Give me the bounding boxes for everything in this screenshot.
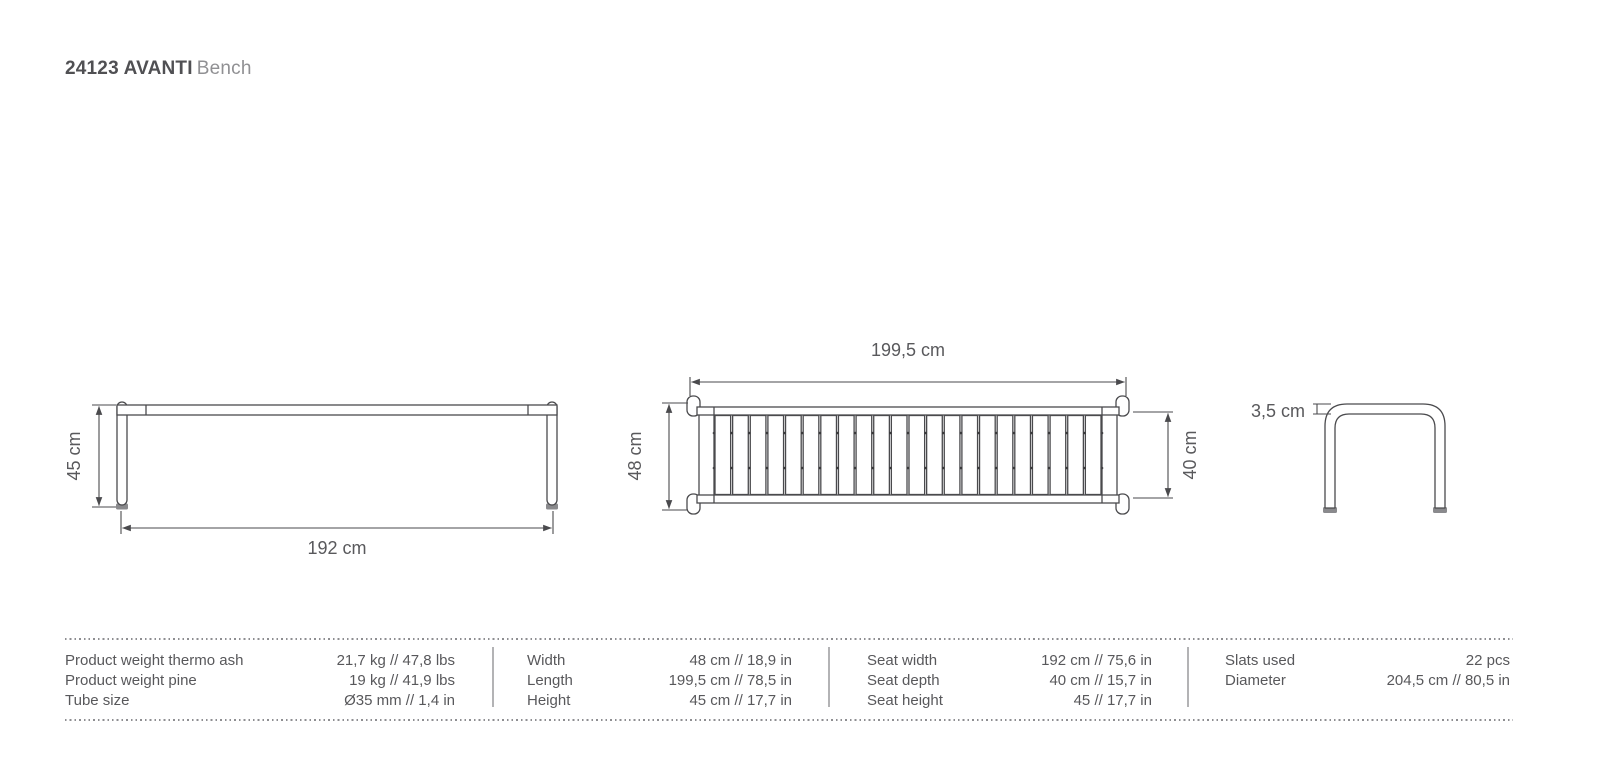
front-left-leg bbox=[117, 402, 127, 505]
seat-slat bbox=[733, 416, 749, 495]
spec-label: Product weight thermo ash bbox=[65, 652, 243, 669]
top-view-front-rail bbox=[697, 407, 1119, 415]
top-length-label: 199,5 cm bbox=[871, 340, 945, 360]
slat-screw-dot bbox=[748, 467, 751, 470]
seat-slat bbox=[750, 416, 766, 495]
slat-screw-dot bbox=[924, 432, 927, 435]
slat-screw-dot bbox=[1030, 432, 1033, 435]
slat-screw-dot bbox=[871, 432, 874, 435]
front-width-label: 192 cm bbox=[307, 538, 366, 558]
slat-screw-dot bbox=[942, 432, 945, 435]
top-view: 199,5 cm 48 cm 40 cm bbox=[625, 340, 1200, 514]
spec-label: Slats used bbox=[1225, 652, 1295, 669]
column-separator bbox=[828, 647, 830, 707]
spec-value: 22 pcs bbox=[1466, 652, 1510, 669]
slat-screw-dot bbox=[783, 432, 786, 435]
spec-column-materials: Slats used22 pcsDiameter204,5 cm // 80,5… bbox=[1225, 650, 1510, 690]
spec-row: Width48 cm // 18,9 in bbox=[527, 650, 792, 670]
spec-row: Seat width192 cm // 75,6 in bbox=[867, 650, 1152, 670]
dotted-rule-top bbox=[65, 638, 1513, 640]
spec-value: 204,5 cm // 80,5 in bbox=[1387, 672, 1510, 689]
spec-label: Width bbox=[527, 652, 565, 669]
slat-screw-dot bbox=[1065, 432, 1068, 435]
column-separator bbox=[492, 647, 494, 707]
front-view: 45 cm 192 cm bbox=[64, 402, 558, 558]
spec-value: 45 cm // 17,7 in bbox=[689, 692, 792, 709]
slat-screw-dot bbox=[1013, 467, 1016, 470]
slat-screw-dot bbox=[819, 432, 822, 435]
seat-slat bbox=[944, 416, 960, 495]
slat-screw-dot bbox=[801, 467, 804, 470]
spec-label: Height bbox=[527, 692, 570, 709]
spec-label: Seat depth bbox=[867, 672, 940, 689]
slat-screw-dot bbox=[889, 467, 892, 470]
top-seat-depth-dimension bbox=[1133, 412, 1173, 498]
slat-screw-dot bbox=[783, 467, 786, 470]
front-seat-bar bbox=[117, 405, 557, 415]
slat-screw-dot bbox=[801, 432, 804, 435]
front-height-label: 45 cm bbox=[64, 431, 84, 480]
slat-screw-dot bbox=[854, 467, 857, 470]
side-view: 3,5 cm bbox=[1251, 401, 1447, 513]
spec-label: Tube size bbox=[65, 692, 129, 709]
seat-slat bbox=[768, 416, 784, 495]
top-depth-label: 48 cm bbox=[625, 431, 645, 480]
seat-slat bbox=[803, 416, 819, 495]
slat-screw-dot bbox=[730, 432, 733, 435]
slat-screw-dot bbox=[907, 467, 910, 470]
spec-value: 199,5 cm // 78,5 in bbox=[669, 672, 792, 689]
seat-slat bbox=[838, 416, 854, 495]
spec-value: 48 cm // 18,9 in bbox=[689, 652, 792, 669]
slat-screw-dot bbox=[836, 432, 839, 435]
seat-slat bbox=[980, 416, 996, 495]
slat-screw-dot bbox=[1083, 467, 1086, 470]
spec-value: 192 cm // 75,6 in bbox=[1041, 652, 1152, 669]
spec-row: Seat depth40 cm // 15,7 in bbox=[867, 670, 1152, 690]
spec-value: Ø35 mm // 1,4 in bbox=[344, 692, 455, 709]
front-height-dimension bbox=[92, 405, 116, 507]
slat-screw-dot bbox=[889, 432, 892, 435]
slat-screw-dot bbox=[766, 467, 769, 470]
top-depth-dimension bbox=[662, 403, 688, 510]
seat-slat bbox=[1050, 416, 1066, 495]
spec-value: 21,7 kg // 47,8 lbs bbox=[337, 652, 455, 669]
side-tube-label: 3,5 cm bbox=[1251, 401, 1305, 421]
spec-label: Length bbox=[527, 672, 573, 689]
front-width-dimension bbox=[121, 511, 553, 534]
spec-row: Product weight pine19 kg // 41,9 lbs bbox=[65, 670, 455, 690]
slat-screw-dot bbox=[766, 432, 769, 435]
spec-row: Product weight thermo ash21,7 kg // 47,8… bbox=[65, 650, 455, 670]
slat-screw-dot bbox=[1013, 432, 1016, 435]
top-view-back-rail bbox=[697, 495, 1119, 503]
technical-drawing: 45 cm 192 cm bbox=[0, 0, 1600, 620]
product-spec-sheet: 24123 AVANTIBench 45 cm bbox=[0, 0, 1600, 783]
seat-slat bbox=[962, 416, 978, 495]
spec-column-weights: Product weight thermo ash21,7 kg // 47,8… bbox=[65, 650, 455, 710]
spec-column-overall-dimensions: Width48 cm // 18,9 inLength199,5 cm // 7… bbox=[527, 650, 792, 710]
spec-row: Slats used22 pcs bbox=[1225, 650, 1510, 670]
spec-value: 40 cm // 15,7 in bbox=[1049, 672, 1152, 689]
slat-screw-dot bbox=[1048, 432, 1051, 435]
slat-screw-dot bbox=[854, 432, 857, 435]
slat-screw-dot bbox=[1083, 432, 1086, 435]
seat-slat bbox=[874, 416, 890, 495]
slat-screw-dot bbox=[748, 432, 751, 435]
slat-screw-dot bbox=[995, 432, 998, 435]
spec-row: Diameter204,5 cm // 80,5 in bbox=[1225, 670, 1510, 690]
seat-slat bbox=[1068, 416, 1084, 495]
top-length-dimension bbox=[690, 377, 1126, 396]
slat-screw-dot bbox=[977, 467, 980, 470]
spec-value: 45 // 17,7 in bbox=[1074, 692, 1152, 709]
spec-row: Height45 cm // 17,7 in bbox=[527, 690, 792, 710]
slat-screw-dot bbox=[1048, 467, 1051, 470]
spec-column-seat-dimensions: Seat width192 cm // 75,6 inSeat depth40 … bbox=[867, 650, 1152, 710]
spec-label: Diameter bbox=[1225, 672, 1286, 689]
slat-screw-dot bbox=[995, 467, 998, 470]
seat-slat bbox=[786, 416, 802, 495]
side-tube-frame bbox=[1325, 404, 1445, 508]
front-right-leg bbox=[547, 402, 557, 505]
slat-screw-dot bbox=[907, 432, 910, 435]
slat-screw-dot bbox=[1030, 467, 1033, 470]
spec-row: Tube sizeØ35 mm // 1,4 in bbox=[65, 690, 455, 710]
slat-field bbox=[713, 416, 1104, 495]
seat-slat bbox=[1015, 416, 1031, 495]
seat-slat bbox=[997, 416, 1013, 495]
slat-screw-dot bbox=[730, 467, 733, 470]
slat-screw-dot bbox=[960, 467, 963, 470]
seat-slat bbox=[1032, 416, 1048, 495]
slat-screw-dot bbox=[960, 432, 963, 435]
seat-slat bbox=[927, 416, 943, 495]
spec-row: Length199,5 cm // 78,5 in bbox=[527, 670, 792, 690]
seat-slat bbox=[891, 416, 907, 495]
slat-screw-dot bbox=[1065, 467, 1068, 470]
spec-row: Seat height45 // 17,7 in bbox=[867, 690, 1152, 710]
slat-screw-dot bbox=[836, 467, 839, 470]
seat-slat bbox=[856, 416, 872, 495]
column-separator bbox=[1187, 647, 1189, 707]
slat-screw-dot bbox=[924, 467, 927, 470]
slat-screw-dot bbox=[819, 467, 822, 470]
slat-screw-dot bbox=[942, 467, 945, 470]
spec-value: 19 kg // 41,9 lbs bbox=[349, 672, 455, 689]
seat-slat bbox=[821, 416, 837, 495]
spec-label: Product weight pine bbox=[65, 672, 197, 689]
slat-screw-dot bbox=[871, 467, 874, 470]
seat-slat bbox=[715, 416, 731, 495]
seat-slat bbox=[909, 416, 925, 495]
top-seat-depth-label: 40 cm bbox=[1180, 430, 1200, 479]
slat-screw-dot bbox=[977, 432, 980, 435]
spec-label: Seat width bbox=[867, 652, 937, 669]
dotted-rule-bottom bbox=[65, 719, 1513, 721]
spec-label: Seat height bbox=[867, 692, 943, 709]
seat-slat bbox=[1085, 416, 1101, 495]
